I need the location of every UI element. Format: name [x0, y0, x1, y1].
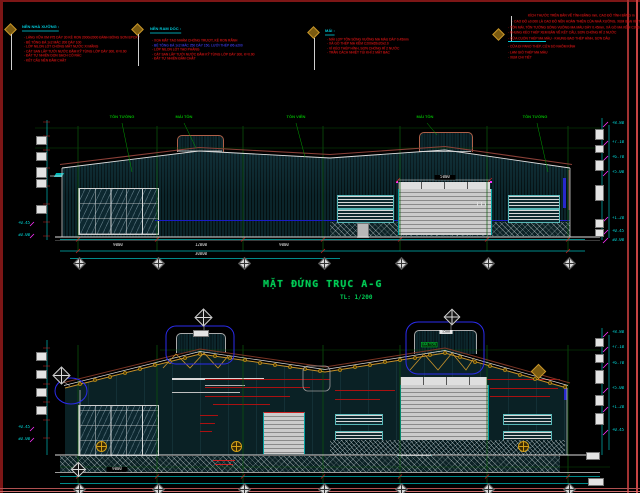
grid-bubble — [73, 257, 86, 270]
section-ground-hatch — [60, 456, 560, 472]
level-label: +6.70 — [612, 155, 624, 160]
grid-bubble — [73, 483, 86, 493]
dim-box — [595, 354, 604, 363]
section-leader — [335, 390, 395, 391]
grid-bubble — [395, 257, 408, 270]
dim-box — [36, 388, 47, 397]
note-item: - ĐẤT TỰ NHIÊN ĐẦM CHẶT — [152, 57, 196, 61]
elevation-louver — [337, 195, 394, 209]
grid-bubble — [482, 257, 495, 270]
general-note-line: - CAO ĐỘ ±0.000 LÀ CAO ĐỘ NỀN HOÀN THIỆN… — [512, 20, 640, 24]
note-bracket-line — [138, 34, 139, 66]
level-label: ±0.00 — [612, 238, 624, 243]
dim-box — [36, 167, 47, 178]
dim-box — [595, 229, 604, 237]
general-note-line: - LAM GIÓ THÉP MẠ MÀU — [508, 51, 547, 55]
sheet-border-right-outer — [636, 0, 638, 493]
grid-bubble — [318, 483, 331, 493]
drawing-scale: TL: 1/200 — [340, 294, 373, 301]
door-corner-tick — [490, 181, 492, 183]
level-label: +6.70 — [612, 361, 624, 366]
span-dim: 9000 — [107, 467, 128, 472]
grid-bubble — [152, 483, 165, 493]
cad-drawing-canvas: NỀN NHÀ XƯỞNG : - LÁNG VỮA XM #75 DÀY 30… — [0, 0, 640, 493]
section-leader — [335, 399, 380, 400]
dim-box — [36, 179, 47, 188]
monitor-dim-box — [193, 330, 209, 337]
door-width-dim: 5000 — [435, 175, 456, 180]
span-dim: 12000 — [189, 243, 213, 248]
general-note-line: - XEM CHI TIẾT — [508, 56, 532, 60]
benchmark-diamond — [52, 366, 70, 384]
grid-bubble — [563, 257, 576, 270]
span-dim: 9000 — [108, 243, 129, 248]
general-note-line: - CỬA ĐI PANO THÉP, CỬA SỔ NHÔM KÍNH — [508, 45, 575, 49]
section-ground-mark — [215, 464, 233, 465]
dim-box — [36, 352, 47, 361]
monitor-material-label: MÁI TÔN — [421, 342, 437, 347]
sheet-border-top — [0, 0, 640, 2]
door-jamb-tick — [485, 203, 486, 206]
material-label: TÔN VIỀN — [280, 115, 312, 120]
benchmark-diamond — [444, 309, 461, 326]
elevation-roller-door — [398, 189, 492, 235]
elevation-downspout — [563, 178, 566, 208]
elevation-louver — [508, 209, 560, 223]
note-item: - LỚP NILON LÓT CHỐNG MẤT NƯỚC XI MĂNG — [24, 45, 98, 49]
grid-bubble — [318, 257, 331, 270]
elevation-glass-wall — [78, 188, 159, 235]
monitor-dim: 1500 — [439, 330, 452, 334]
level-label: +0.45 — [18, 221, 30, 226]
gold-circle-callout — [96, 441, 107, 452]
grid-bubble — [482, 483, 495, 493]
note-item: - LỚP NILON LÓT TẠO PHẲNG — [152, 48, 199, 52]
dim-box — [595, 338, 604, 347]
note-item: - KẾT CẤU NỀN ĐẦM CHẶT — [24, 59, 66, 63]
note-heading: NỀN RAM DỐC : — [150, 27, 181, 33]
section-leader — [490, 388, 558, 389]
note-bracket-line — [314, 38, 315, 70]
dim-box — [36, 370, 47, 379]
section-leader — [205, 379, 330, 380]
general-note-line: - TÔN MÁI, TÔN TƯỜNG SÓNG VUÔNG MẠ MÀU D… — [508, 26, 640, 30]
gold-circle-callout — [518, 441, 529, 452]
dim-box — [595, 185, 604, 201]
span-dim: 9000 — [274, 243, 295, 248]
note-anchor-diamond — [307, 26, 320, 39]
grid-bubble — [238, 257, 251, 270]
level-label: +7.10 — [612, 345, 624, 350]
elevation-louver — [508, 195, 560, 209]
elevation-roof-monitor-1 — [177, 135, 224, 152]
dim-box — [595, 219, 604, 228]
general-note-line: KÍCH THƯỚC TRÊN BẢN VẼ TÍNH BẰNG mm, CAO… — [528, 14, 635, 18]
dim-box — [595, 160, 604, 171]
dim-box — [586, 452, 600, 460]
elevation-louver — [337, 209, 394, 223]
section-leader — [200, 423, 215, 424]
sheet-border-right-inner — [627, 0, 629, 493]
note-item: - BÊ TÔNG ĐÁ 1x2 MÁC 250 DÀY 150, LƯỚI T… — [152, 44, 243, 48]
section-ground-mark — [213, 460, 235, 461]
dim-box — [595, 413, 604, 425]
note-item: - LÁNG VỮA XM #75 DÀY 30 KẺ RON 2000x200… — [24, 36, 140, 40]
gold-circle-callout — [231, 441, 242, 452]
material-label: MÁI TÔN — [409, 115, 441, 120]
material-label: TÔN TƯỜNG — [106, 115, 138, 120]
level-label: +5.00 — [612, 170, 624, 175]
dim-box — [36, 152, 47, 161]
note-heading: MÁI : — [325, 29, 335, 35]
level-label: +1.20 — [612, 216, 624, 221]
section-glass-wall — [78, 405, 159, 457]
section-leader — [205, 396, 290, 397]
section-leader — [205, 387, 310, 388]
drawing-title: MẶT ĐỨNG TRỤC A-G — [263, 279, 382, 290]
section-leader — [200, 415, 218, 416]
material-label: MÁI TÔN — [168, 115, 200, 120]
benchmark-diamond — [194, 308, 212, 326]
level-label: +0.45 — [18, 425, 30, 430]
level-label: +0.45 — [612, 229, 624, 234]
dim-box — [595, 370, 604, 384]
section-crane-beam — [172, 392, 240, 393]
gold-diamond-marker — [531, 364, 547, 380]
grid-bubble — [238, 483, 251, 493]
level-label: +8.80 — [612, 330, 624, 335]
section-crane-beam — [205, 385, 245, 386]
door-corner-tick — [396, 181, 398, 183]
material-label: TÔN TƯỜNG — [519, 115, 551, 120]
elevation-roof-monitor-2 — [419, 132, 473, 152]
section-roller-door-small — [263, 412, 305, 454]
dim-box — [36, 406, 47, 415]
section-louver — [335, 414, 383, 425]
level-label: +7.10 — [612, 140, 624, 145]
general-note-line: - CỬA CUỐN THÉP MẠ MÀU - KHUNG BAO THÉP … — [508, 37, 610, 41]
level-label: +1.20 — [612, 405, 624, 410]
level-label: ±0.00 — [18, 233, 30, 238]
grid-bubble — [152, 257, 165, 270]
section-leader — [487, 379, 560, 380]
dim-box — [36, 205, 47, 214]
dim-box — [588, 478, 604, 486]
note-item: - TRẦN CÁCH NHIỆT TÚI KHÍ 2 MẶT BẠC — [327, 51, 390, 55]
elevation-personnel-door — [357, 223, 369, 238]
note-anchor-diamond — [492, 28, 505, 41]
level-label: +5.00 — [612, 386, 624, 391]
level-label: +0.45 — [612, 428, 624, 433]
general-note-line: - KHUNG KÈO THÉP XEM BẢN VẼ KẾT CẤU, SƠN… — [508, 31, 616, 35]
section-ground-hatch-dark — [330, 440, 565, 455]
section-louver — [503, 414, 552, 425]
sheet-border-left — [0, 0, 3, 493]
total-dim: 30000 — [189, 252, 213, 257]
grid-bubble — [563, 483, 576, 493]
note-heading: NỀN NHÀ XƯỞNG : — [22, 25, 59, 31]
section-leader — [213, 404, 270, 405]
section-leader — [200, 431, 212, 432]
level-label: ±0.00 — [18, 437, 30, 442]
dim-box — [595, 129, 604, 140]
dim-box — [595, 145, 604, 153]
note-bracket-line — [11, 34, 12, 70]
door-jamb-tick — [481, 202, 482, 206]
note-item: - XOA MẶT TẠO NHÁM CHỐNG TRƯỢT, KẺ RON R… — [152, 39, 237, 43]
section-blue-accent — [564, 387, 567, 400]
grid-bubble — [395, 483, 408, 493]
dim-box — [595, 395, 604, 406]
dim-box — [36, 136, 47, 145]
door-jamb-tick — [477, 202, 478, 206]
section-leader — [490, 396, 550, 397]
level-label: +8.80 — [612, 121, 624, 126]
note-item: - XÀ GỒ THÉP MẠ KẼM C200x65x20x2.0 — [327, 42, 389, 46]
